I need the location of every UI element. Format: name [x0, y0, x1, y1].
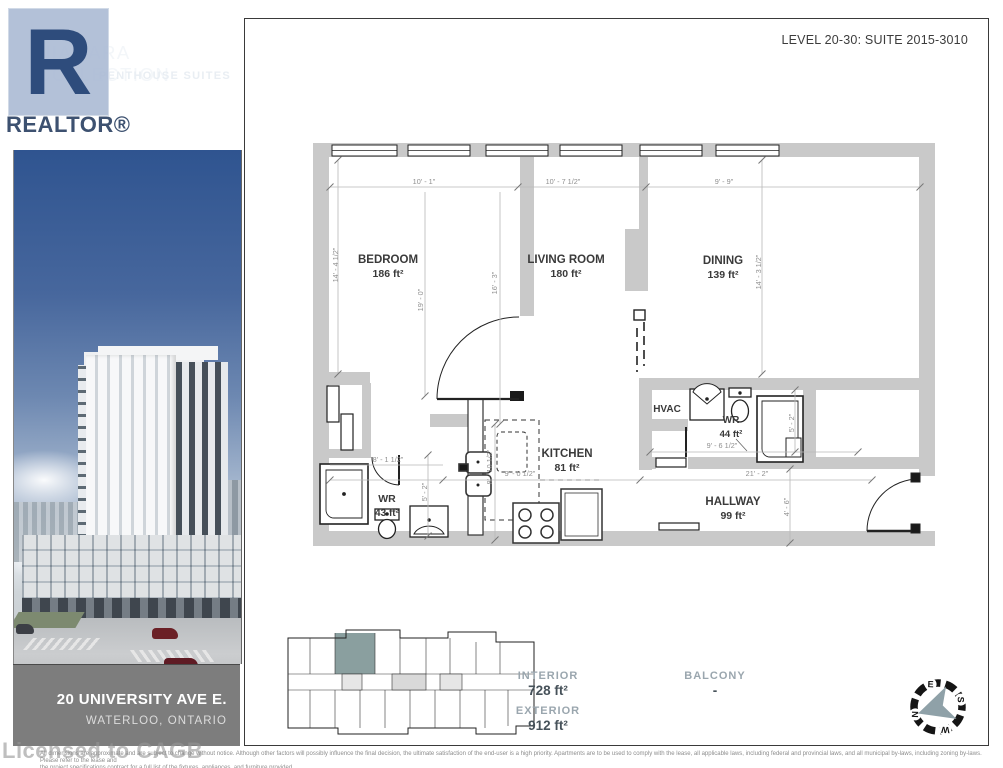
room-label-wr-right: WR	[723, 415, 740, 426]
compass-west: W	[940, 725, 949, 735]
room-label-hallway: HALLWAY	[705, 496, 760, 508]
room-label-dining: DINING	[703, 255, 743, 267]
realtor-r-icon: R	[25, 15, 93, 109]
room-area-living: 180 ft²	[551, 268, 582, 280]
realtor-wordmark: REALTOR®	[6, 112, 131, 138]
room-area-dining: 139 ft²	[708, 269, 739, 281]
address-block: 20 UNIVERSITY AVE E. WATERLOO, ONTARIO	[13, 664, 240, 746]
room-area-bedroom: 186 ft²	[373, 268, 404, 280]
room-area-wr-left: 43 ft²	[375, 508, 400, 519]
dimension-ticks	[327, 157, 924, 547]
dim-kitchen-depth: 8' - 10 1/2"	[485, 449, 494, 484]
compass-east: E	[927, 679, 933, 689]
car	[16, 624, 34, 634]
compass-south: S	[956, 696, 966, 702]
fridge-icon	[561, 489, 602, 540]
interior-stat: INTERIOR 728 ft² EXTERIOR 912 ft²	[483, 670, 613, 733]
floorplan-sheet: NIAGARA COLLECTION PENTHOUSE SUITES A17 …	[0, 0, 1003, 768]
compass-north: N	[910, 711, 920, 718]
dim-living-width: 10' - 7 1/2"	[546, 177, 581, 186]
floorplan-drawing: 10' - 1" 10' - 7 1/2" 9' - 9" 14' - 4 1/…	[300, 130, 972, 562]
room-area-kitchen: 81 ft²	[554, 462, 580, 474]
bench-icon	[659, 523, 699, 530]
suite-code: A17	[117, 84, 233, 147]
exterior-value: 912 ft²	[483, 718, 613, 733]
room-label-bedroom: BEDROOM	[358, 254, 418, 266]
balcony-stat: BALCONY -	[650, 670, 780, 698]
floorplan-walls	[313, 143, 935, 546]
car	[152, 628, 178, 639]
closet-sliding-doors	[327, 386, 353, 450]
dim-kitchen-width: 9' - 0 1/2"	[505, 469, 536, 478]
compass-icon: N E S W	[905, 674, 971, 740]
dim-right-height: 14' - 3 1/2"	[754, 254, 763, 289]
dimension-lines	[330, 160, 920, 543]
stove-icon	[513, 503, 559, 543]
dim-bedroom-depth: 19' - 0"	[416, 288, 425, 311]
dim-wr-right-width: 9' - 6 1/2"	[707, 441, 738, 450]
room-label-hvac: HVAC	[653, 404, 681, 415]
room-label-living: LIVING ROOM	[527, 254, 604, 266]
exterior-label: EXTERIOR	[483, 705, 613, 717]
disclaimer-line1: All dimensions are approximate and are s…	[40, 751, 992, 765]
room-area-wr-right: 44 ft²	[720, 429, 743, 440]
building-rendering	[13, 150, 242, 664]
interior-value: 728 ft²	[483, 683, 613, 698]
dim-living-depth: 16' - 3"	[490, 271, 499, 294]
leader-line	[736, 439, 747, 451]
address-line2: WATERLOO, ONTARIO	[13, 708, 240, 727]
dim-hallway-width: 21' - 2"	[746, 469, 769, 478]
keyplan-highlighted-unit	[335, 633, 375, 674]
dim-hallway-depth: 4' - 6"	[782, 497, 791, 516]
dim-wr-left-depth: 5' - 2"	[420, 482, 429, 501]
balcony-value: -	[650, 683, 780, 698]
level-suite-line: LEVEL 20-30: SUITE 2015-3010	[690, 33, 968, 47]
room-label-kitchen: KITCHEN	[541, 448, 592, 460]
balcony-label: BALCONY	[650, 670, 780, 682]
interior-label: INTERIOR	[483, 670, 613, 682]
realtor-logo: R REALTOR®	[6, 6, 126, 138]
dim-left-height: 14' - 4 1/2"	[331, 247, 340, 282]
crosswalk	[23, 638, 103, 650]
room-area-hallway: 99 ft²	[720, 510, 746, 522]
dim-wr-left-width: 8' - 1 1/2"	[373, 455, 404, 464]
dim-bedroom-width: 10' - 1"	[413, 177, 436, 186]
dim-wr-right-depth: 5' - 2"	[787, 413, 796, 432]
dim-dining-width: 9' - 9"	[715, 177, 734, 186]
realtor-logo-block: R	[8, 8, 109, 116]
disclaimer: All dimensions are approximate and are s…	[40, 751, 992, 768]
address-line1: 20 UNIVERSITY AVE E.	[13, 665, 240, 708]
room-label-wr-left: WR	[378, 493, 396, 505]
